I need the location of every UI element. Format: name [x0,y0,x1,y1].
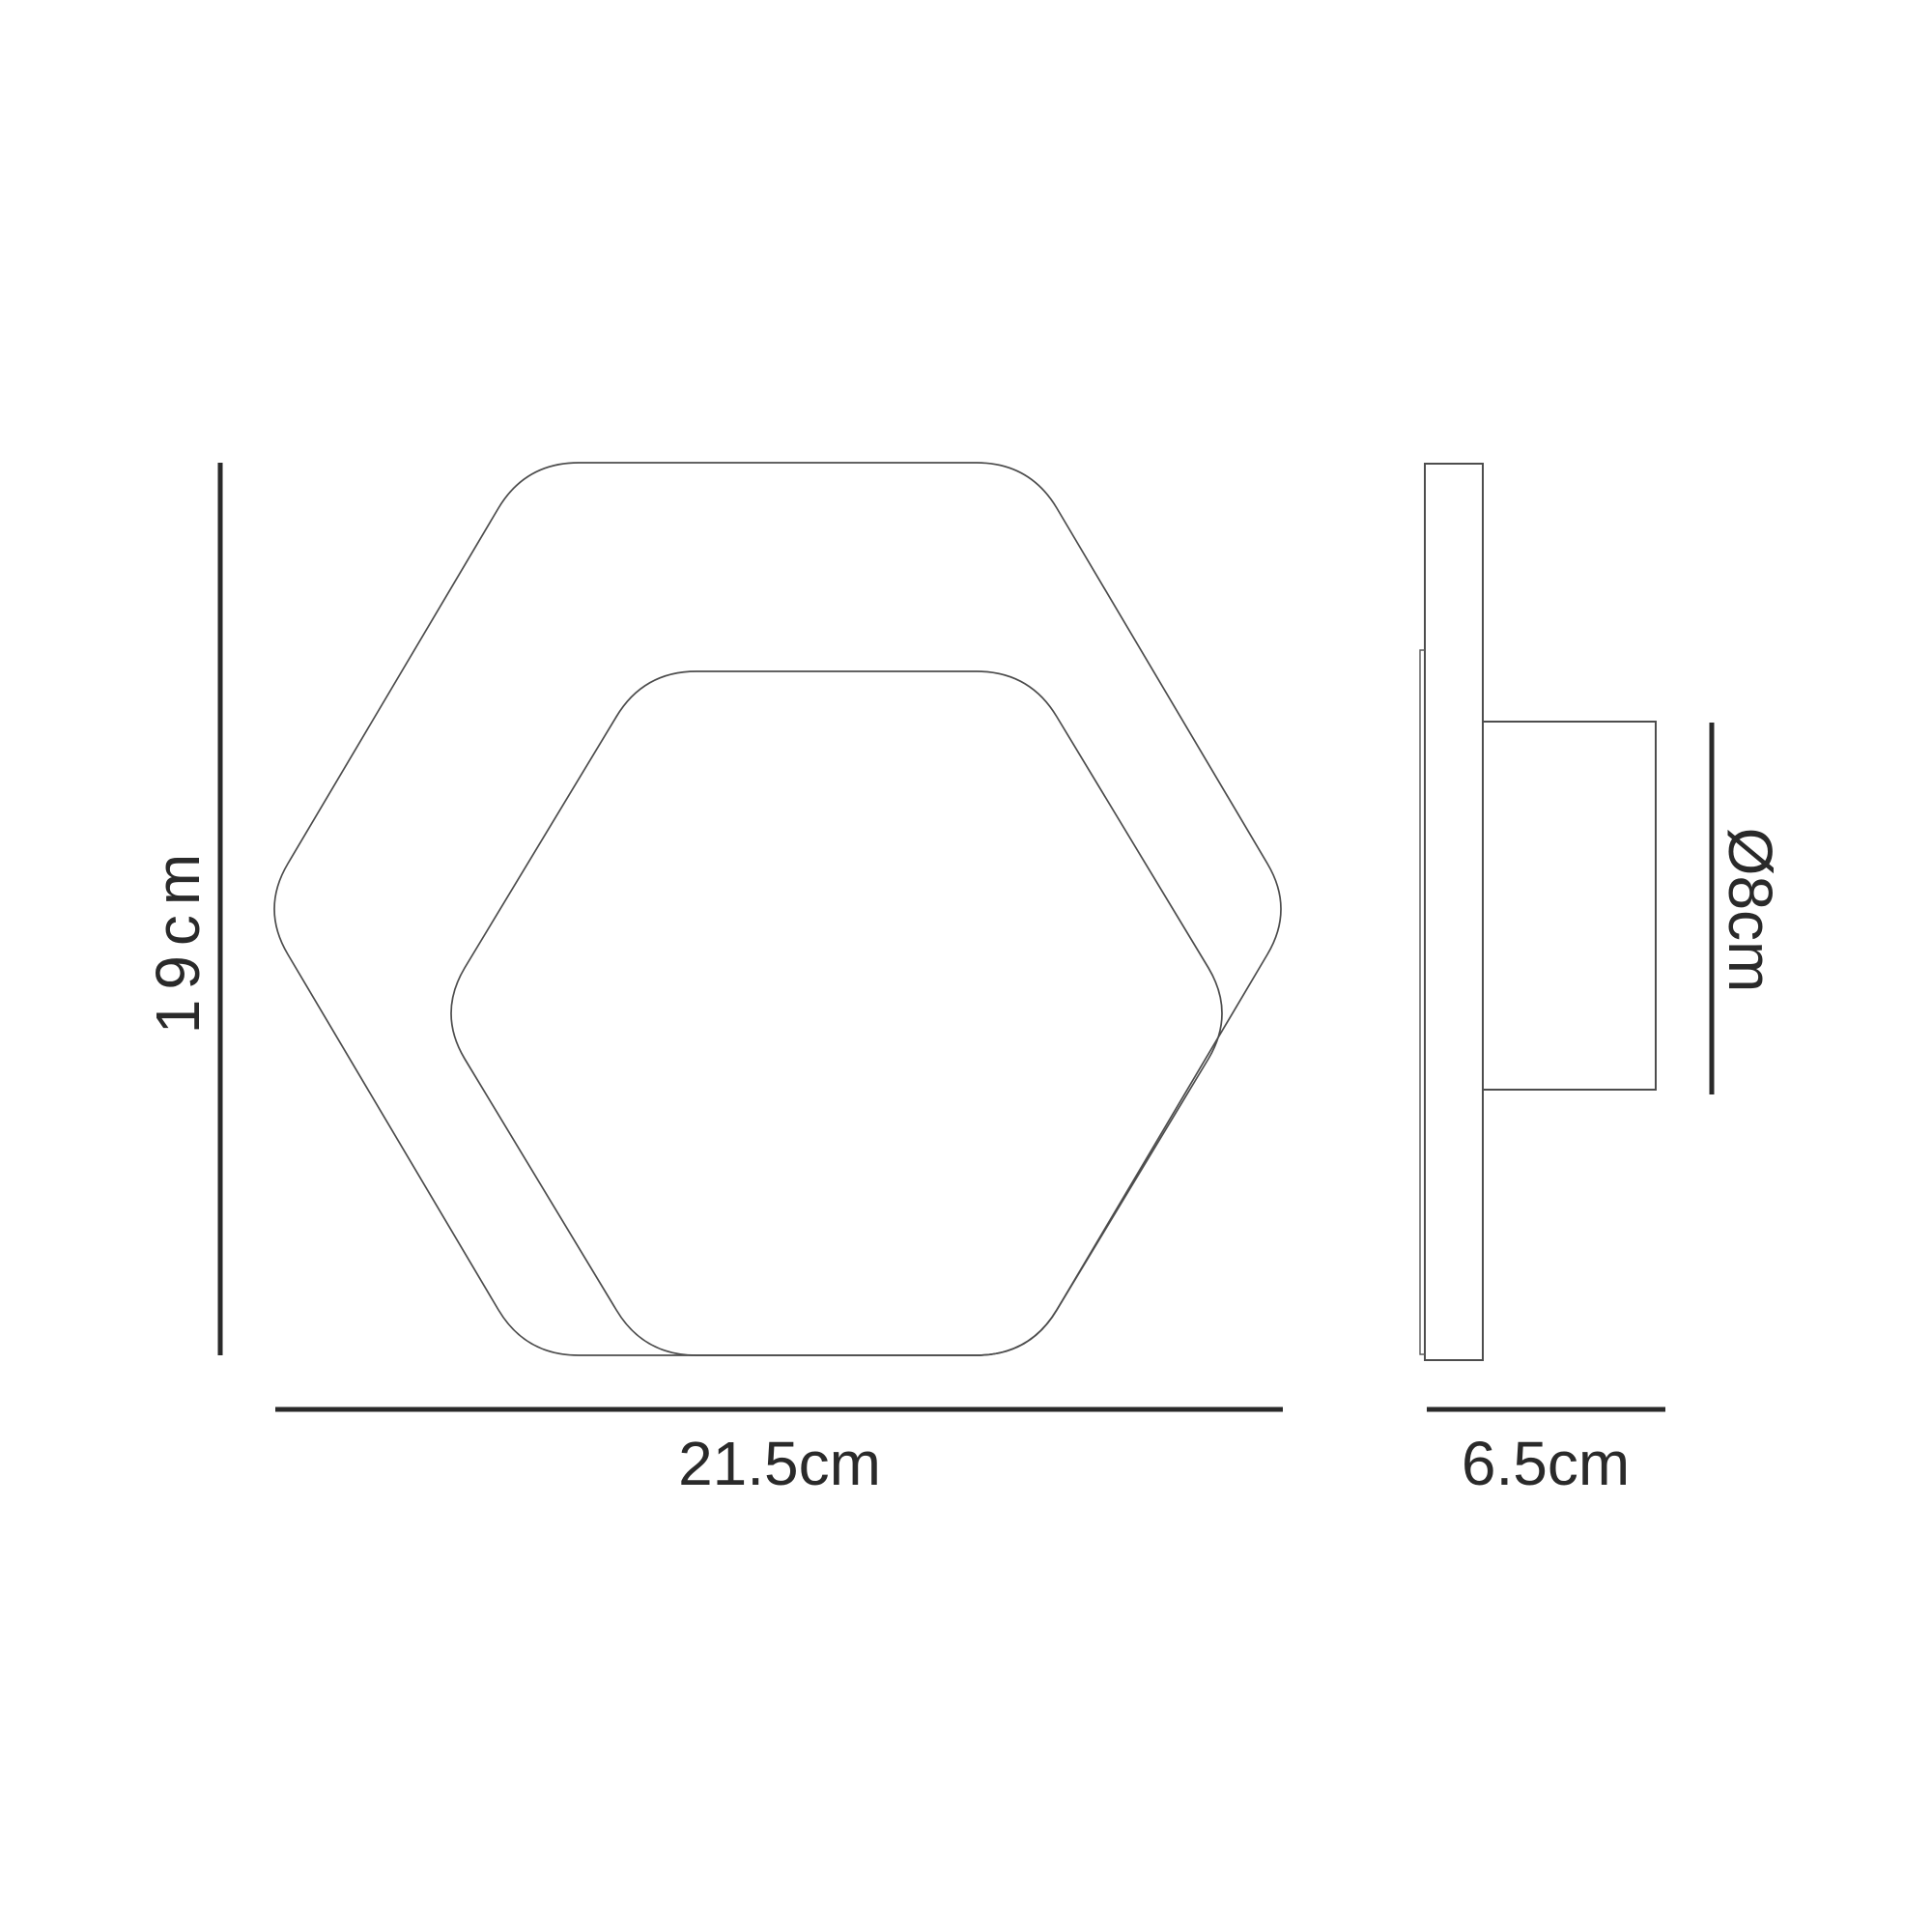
depth-dimension-label: 6.5cm [1462,1429,1630,1498]
mount-diameter-dimension-label: Ø8cm [1716,828,1785,993]
back-plate-outline [1425,464,1483,1360]
height-dimension-label: 19cm [143,844,213,1035]
width-dimension-label: 21.5cm [678,1429,881,1498]
inner-hexagon-outline [451,671,1222,1355]
outer-hexagon-outline [274,463,1281,1355]
side-view: 6.5cm Ø8cm [1420,464,1785,1498]
mounting-box-outline [1483,722,1656,1090]
front-view: 19cm 21.5cm [143,463,1283,1498]
dimension-diagram-page: 19cm 21.5cm 6.5cm Ø8cm [0,0,1932,1932]
dimension-diagram: 19cm 21.5cm 6.5cm Ø8cm [0,0,1932,1932]
